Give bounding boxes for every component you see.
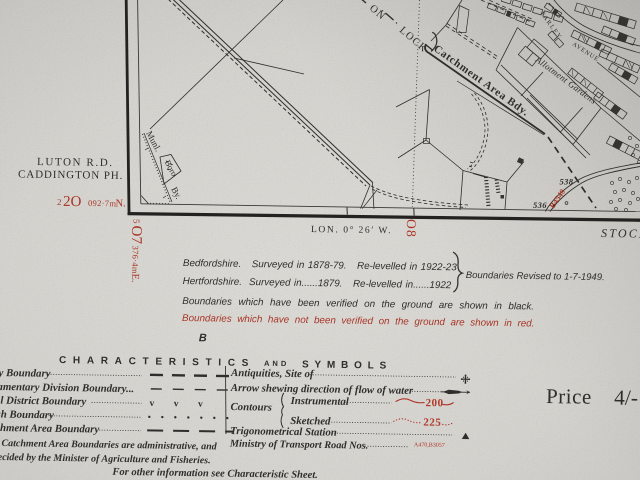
svg-text:Contours: Contours bbox=[230, 401, 272, 414]
svg-text:Parish Boundary: Parish Boundary bbox=[0, 408, 54, 421]
svg-text:Catchment Area Boundary: Catchment Area Boundary bbox=[0, 422, 100, 436]
svg-text:Parliamentary Division Boundar: Parliamentary Division Boundary... bbox=[0, 381, 134, 395]
svg-text:O7: O7 bbox=[128, 225, 144, 244]
svg-text:For other information see Char: For other information see Characteristic… bbox=[111, 467, 318, 480]
svg-text:Price: Price bbox=[546, 384, 592, 409]
svg-text:Trigonometrical Station: Trigonometrical Station bbox=[230, 425, 337, 439]
svg-text:538: 538 bbox=[560, 177, 574, 187]
svg-text:092·7m: 092·7m bbox=[88, 198, 116, 208]
svg-text:O8: O8 bbox=[404, 219, 419, 238]
svg-text:376·4m: 376·4m bbox=[130, 245, 140, 273]
svg-text:2O: 2O bbox=[63, 194, 82, 210]
svg-text:LON. 0° 26′ W.: LON. 0° 26′ W. bbox=[311, 224, 392, 236]
svg-text:LUTON R.D.: LUTON R.D. bbox=[37, 156, 114, 169]
svg-text:5: 5 bbox=[131, 219, 141, 224]
svg-text:Antiquities, Site of: Antiquities, Site of bbox=[230, 367, 315, 380]
svg-text:County Boundary: County Boundary bbox=[0, 367, 51, 380]
svg-text:225: 225 bbox=[423, 417, 441, 429]
svg-text:Ministry of Transport Road Nos: Ministry of Transport Road Nos. bbox=[229, 438, 369, 451]
svg-text:Instrumental: Instrumental bbox=[290, 395, 349, 408]
svg-text:Rural District Boundary: Rural District Boundary bbox=[0, 394, 86, 408]
svg-text:200: 200 bbox=[426, 397, 444, 409]
svg-text:vvv: vvv bbox=[149, 399, 222, 410]
svg-text:B: B bbox=[199, 332, 207, 344]
svg-text:SYMBOLS: SYMBOLS bbox=[302, 359, 392, 371]
svg-text:E.: E. bbox=[129, 273, 140, 282]
svg-text:A470,B3057: A470,B3057 bbox=[414, 442, 445, 448]
svg-text:4/-: 4/- bbox=[614, 386, 638, 410]
svg-text:2: 2 bbox=[57, 197, 62, 207]
svg-text:536: 536 bbox=[533, 200, 547, 210]
svg-text:CADDINGTON PH.: CADDINGTON PH. bbox=[18, 169, 123, 182]
svg-text:N.: N. bbox=[115, 198, 125, 209]
svg-text:STOCK: STOCK bbox=[601, 226, 640, 241]
svg-text:Boundaries Revised to 1-7-1949: Boundaries Revised to 1-7-1949. bbox=[466, 270, 605, 283]
